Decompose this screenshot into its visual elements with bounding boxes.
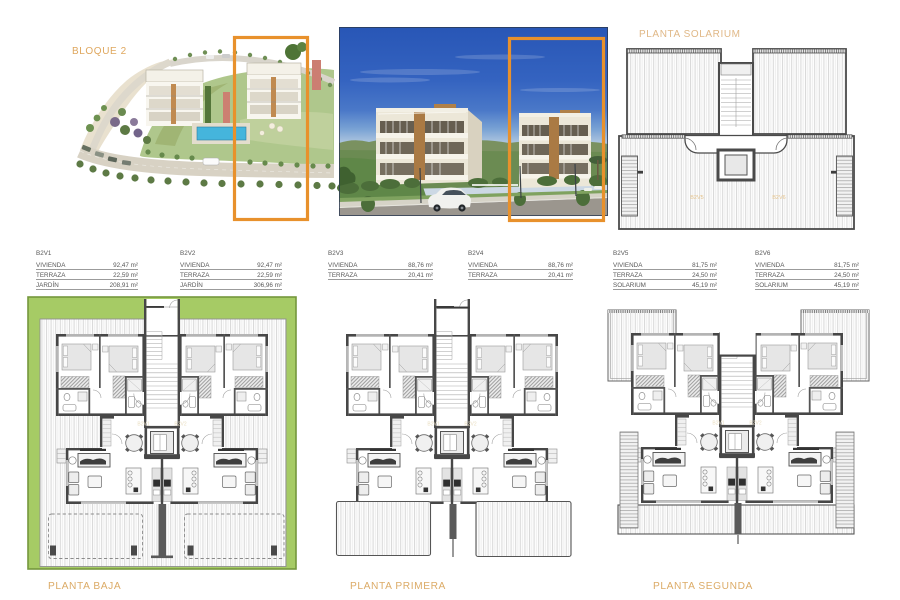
svg-text:B2V1: B2V1 (36, 250, 52, 257)
svg-text:PLANTA PRIMERA: PLANTA PRIMERA (350, 581, 446, 592)
svg-text:24,50 m²: 24,50 m² (834, 272, 859, 279)
svg-text:VIVIENDA: VIVIENDA (36, 262, 66, 269)
svg-text:TERRAZA: TERRAZA (755, 272, 785, 279)
svg-text:B2V3: B2V3 (328, 250, 344, 257)
svg-text:VIVIENDA: VIVIENDA (755, 262, 785, 269)
svg-text:JARDÍN: JARDÍN (36, 280, 59, 289)
svg-text:81,75 m²: 81,75 m² (692, 262, 717, 269)
svg-text:88,76 m²: 88,76 m² (548, 262, 573, 269)
svg-text:B2V6: B2V6 (755, 250, 771, 257)
svg-text:SOLARIUM: SOLARIUM (755, 282, 788, 289)
svg-text:PLANTA SOLARIUM: PLANTA SOLARIUM (639, 29, 741, 40)
svg-text:92,47 m²: 92,47 m² (113, 262, 138, 269)
svg-text:SOLARIUM: SOLARIUM (613, 282, 646, 289)
svg-text:24,50 m²: 24,50 m² (692, 272, 717, 279)
svg-text:B2V4: B2V4 (468, 250, 484, 257)
svg-text:TERRAZA: TERRAZA (468, 272, 498, 279)
svg-text:88,76 m²: 88,76 m² (408, 262, 433, 269)
svg-text:TERRAZA: TERRAZA (180, 272, 210, 279)
svg-text:TERRAZA: TERRAZA (613, 272, 643, 279)
svg-text:45,19 m²: 45,19 m² (692, 282, 717, 289)
svg-text:BLOQUE 2: BLOQUE 2 (72, 46, 127, 57)
svg-text:B2V5: B2V5 (690, 195, 703, 201)
svg-text:PLANTA BAJA: PLANTA BAJA (48, 581, 121, 592)
svg-text:20,41 m²: 20,41 m² (548, 272, 573, 279)
svg-text:B2V2: B2V2 (180, 250, 196, 257)
svg-text:306,96 m²: 306,96 m² (254, 282, 282, 289)
svg-text:VIVIENDA: VIVIENDA (180, 262, 210, 269)
svg-text:TERRAZA: TERRAZA (36, 272, 66, 279)
svg-text:20,41 m²: 20,41 m² (408, 272, 433, 279)
svg-text:VIVIENDA: VIVIENDA (613, 262, 643, 269)
svg-text:VIVIENDA: VIVIENDA (468, 262, 498, 269)
svg-text:B2V5: B2V5 (613, 250, 629, 257)
svg-text:208,91 m²: 208,91 m² (110, 282, 138, 289)
svg-text:92,47 m²: 92,47 m² (257, 262, 282, 269)
svg-text:PLANTA SEGUNDA: PLANTA SEGUNDA (653, 581, 753, 592)
svg-text:TERRAZA: TERRAZA (328, 272, 358, 279)
svg-text:22,59 m²: 22,59 m² (113, 272, 138, 279)
svg-text:45,19 m²: 45,19 m² (834, 282, 859, 289)
svg-text:JARDÍN: JARDÍN (180, 280, 203, 289)
svg-text:22,59 m²: 22,59 m² (257, 272, 282, 279)
svg-text:B2V6: B2V6 (772, 195, 785, 201)
svg-text:VIVIENDA: VIVIENDA (328, 262, 358, 269)
svg-text:81,75 m²: 81,75 m² (834, 262, 859, 269)
